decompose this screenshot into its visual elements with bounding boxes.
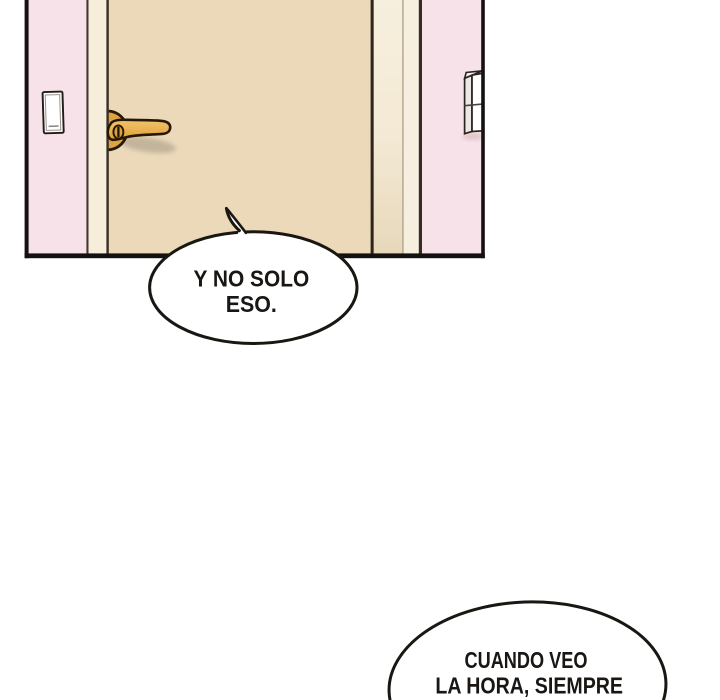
svg-text:Y NO SOLO: Y NO SOLO (194, 265, 310, 291)
svg-text:CUANDO VEO: CUANDO VEO (465, 647, 588, 673)
svg-text:ESO.: ESO. (226, 291, 277, 317)
svg-text:LA HORA, SIEMPRE: LA HORA, SIEMPRE (435, 672, 623, 698)
